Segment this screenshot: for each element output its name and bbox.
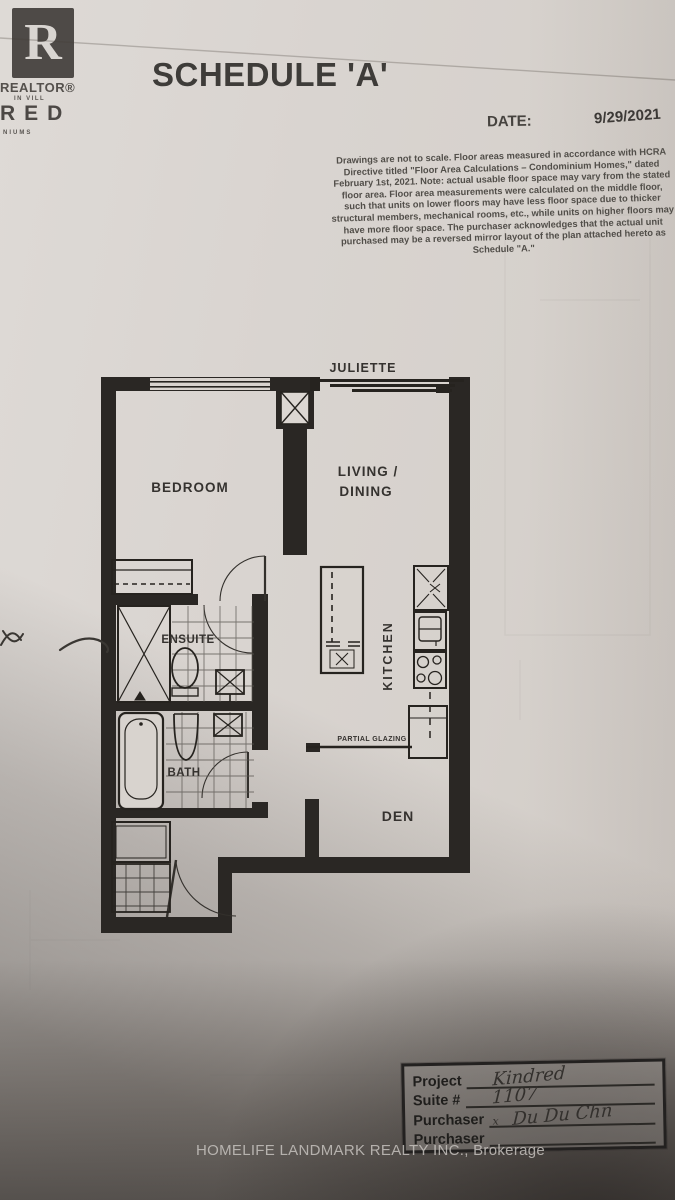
living-dining-label-line2: DINING [339, 484, 392, 499]
living-dining-label-line1: LIVING / [338, 464, 399, 479]
bathtub [119, 713, 163, 809]
juliette-door [310, 377, 464, 393]
purchaser-label-1: Purchaser [413, 1111, 484, 1128]
room-labels: JULIETTE BEDROOM LIVING / DINING KITCHEN… [151, 361, 414, 824]
ensuite-room [118, 606, 254, 702]
purchaser-form: Project Kindred Suite # 1107 Purchaser x… [401, 1058, 667, 1153]
entry-door-leaf [167, 860, 176, 917]
kitchen-area [306, 566, 448, 758]
handwritten-annotation [1, 631, 108, 652]
bedroom-label: BEDROOM [151, 480, 229, 495]
juliette-label: JULIETTE [329, 361, 396, 375]
floor-plan-drawing: JULIETTE BEDROOM LIVING / DINING KITCHEN… [0, 0, 675, 1200]
shower [118, 606, 170, 702]
cooktop [414, 652, 446, 688]
kitchen-sink [414, 612, 446, 650]
den-label: DEN [382, 808, 415, 824]
suite-label: Suite # [413, 1092, 461, 1109]
kitchen-label: KITCHEN [381, 621, 395, 691]
brokerage-watermark: HOMELIFE LANDMARK REALTY INC., Brokerage [196, 1142, 545, 1159]
paper-crease [0, 38, 675, 80]
scanned-schedule-a-document: R REALTOR® IN VILL RED NIUMS SCHEDULE 'A… [0, 0, 675, 1200]
shaft-x-icon [281, 392, 309, 424]
toilet [174, 714, 198, 760]
bath-door-arc [202, 752, 248, 798]
entry-closet [112, 822, 170, 912]
kitchen-island [321, 567, 363, 673]
bath-room [119, 712, 254, 809]
bedroom-closet [112, 560, 192, 594]
entry-tiles [112, 864, 170, 912]
fridge [414, 566, 448, 610]
bath-tiles [166, 712, 254, 808]
lower-cabinet [409, 706, 447, 758]
bath-label: BATH [167, 767, 200, 779]
sink [214, 714, 242, 736]
project-label: Project [412, 1073, 461, 1090]
partial-glazing-label: PARTIAL GLAZING [337, 736, 406, 743]
bedroom-window [150, 378, 270, 390]
toilet [172, 648, 198, 696]
ensuite-label: ENSUITE [161, 634, 214, 646]
